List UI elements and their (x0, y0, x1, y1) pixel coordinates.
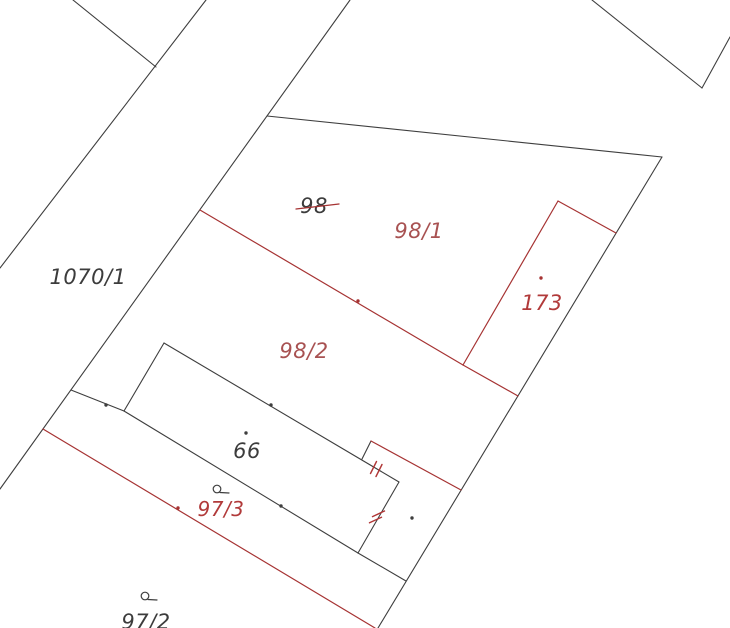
new-parcel-173-north-side (558, 201, 616, 233)
survey-marker-97-3-tail (220, 493, 229, 494)
survey-marker-97-2 (141, 592, 149, 600)
boundary-point-dot (410, 516, 413, 519)
parcel-98-north-boundary (267, 116, 662, 157)
building-66-south-side (124, 411, 358, 553)
new-boundary-97-3-south (43, 429, 375, 628)
boundary-point-dot (176, 506, 179, 509)
parcel-label-97-3: 97/3 (198, 497, 245, 521)
road-west-boundary (0, 0, 206, 268)
parcel-label-98-1: 98/1 (394, 219, 443, 243)
new-boundary-97-3-north (371, 441, 461, 490)
boundary-point-dot (279, 504, 282, 507)
survey-marker-97-2-tail (148, 600, 157, 601)
northeast-corner-line-a (592, 0, 702, 88)
road-to-building-connector (71, 390, 124, 411)
cadastral-map-viewport: 1070/19898/198/21736697/397/2 (0, 0, 730, 628)
boundary-point-dot (269, 403, 272, 406)
building-66-east-side (358, 482, 399, 553)
new-parcel-173-west-side (463, 201, 558, 365)
south-side-extension (358, 553, 406, 581)
boundary-point-dot (356, 299, 359, 302)
map-canvas[interactable]: 1070/19898/198/21736697/397/2 (0, 0, 730, 628)
new-boundary-98-1-98-2-b (463, 365, 518, 396)
merge-tick-east-b (373, 511, 385, 517)
building-66-west-side (124, 343, 164, 411)
survey-marker-97-3 (213, 485, 221, 493)
boundary-point-dot (539, 276, 542, 279)
boundary-point-dot (104, 403, 107, 406)
northeast-corner-line-b (702, 37, 730, 88)
boundary-point-dot (244, 431, 247, 434)
merge-tick-north-b (376, 465, 382, 477)
parcel-label-173: 173 (521, 291, 563, 315)
building-corner-spur (362, 441, 371, 459)
parcel-label-97-2: 97/2 (121, 610, 170, 628)
parcel-label-1070-1: 1070/1 (50, 265, 127, 289)
building-label-66: 66 (233, 439, 261, 463)
road-east-boundary (0, 0, 350, 489)
field-line-northwest (73, 0, 156, 67)
parcel-label-98-2: 98/2 (279, 339, 328, 363)
merge-tick-north-a (371, 462, 377, 474)
building-66-north-side (164, 343, 399, 482)
